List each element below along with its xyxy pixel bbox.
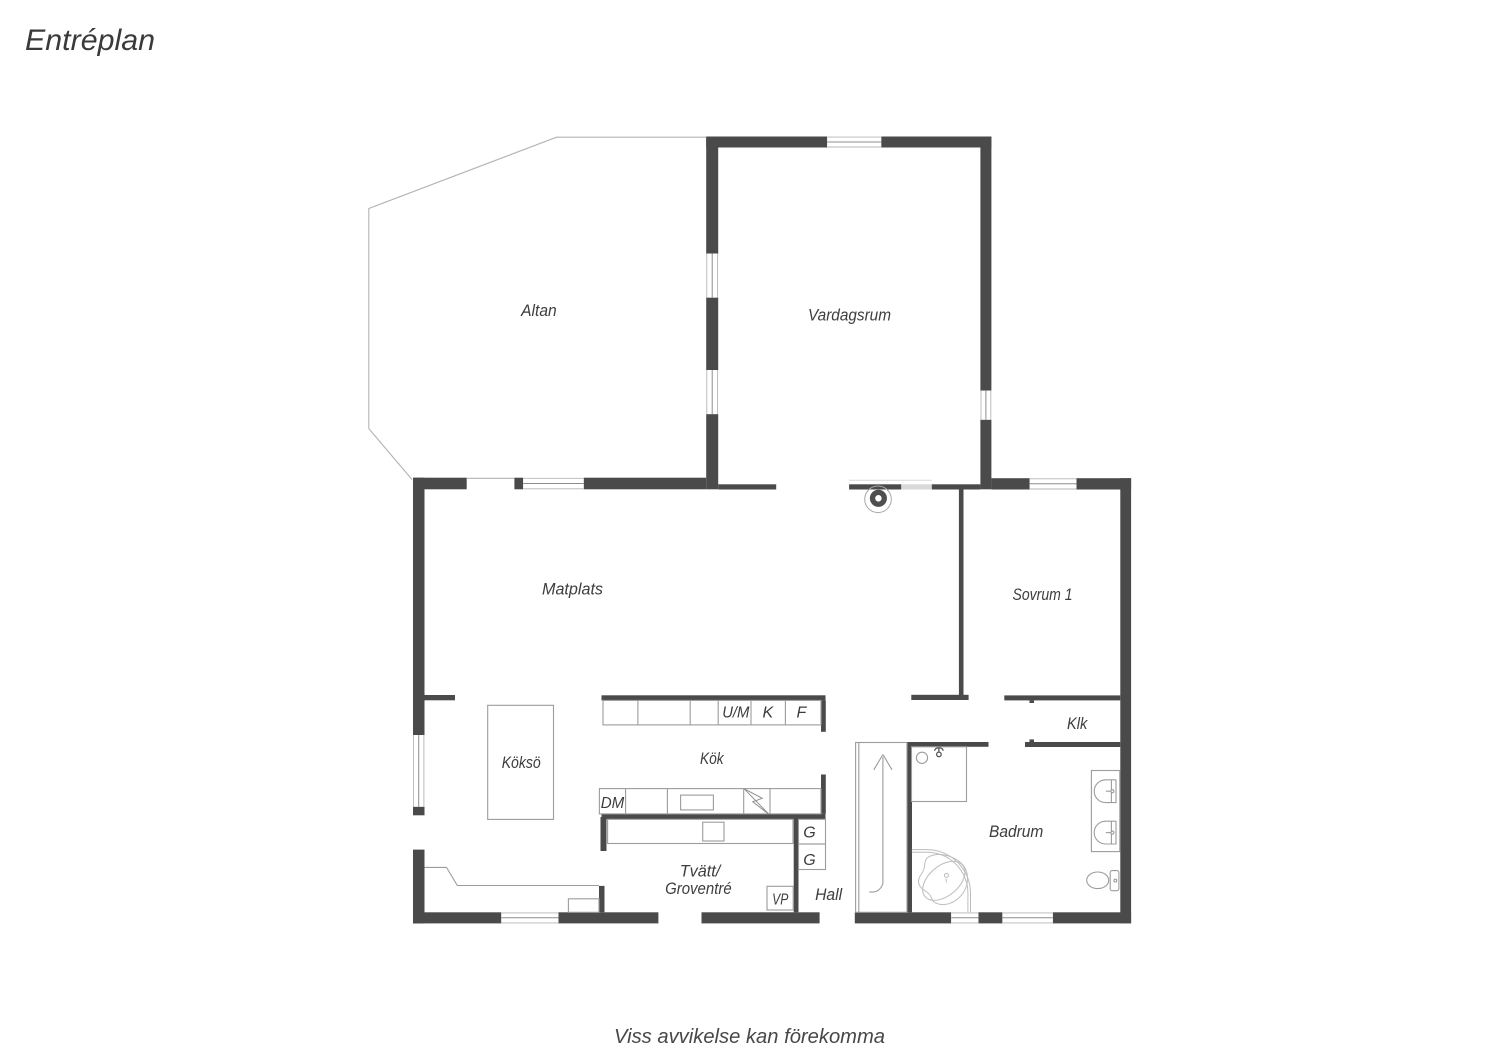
svg-text:Groventré: Groventré (665, 879, 732, 898)
svg-text:Matplats: Matplats (542, 580, 603, 599)
svg-text:Entréplan: Entréplan (25, 24, 155, 57)
svg-text:Badrum: Badrum (989, 822, 1043, 841)
svg-text:Viss avvikelse kan förekomma: Viss avvikelse kan förekomma (614, 1025, 885, 1048)
svg-text:DM: DM (601, 795, 625, 812)
svg-text:U/M: U/M (722, 705, 750, 722)
svg-text:Tvätt/: Tvätt/ (680, 862, 723, 881)
svg-text:F: F (797, 705, 808, 722)
svg-text:G: G (803, 825, 815, 842)
svg-text:Vardagsrum: Vardagsrum (808, 306, 891, 325)
svg-text:K: K (762, 705, 774, 722)
svg-text:Klk: Klk (1067, 714, 1089, 733)
svg-text:Köksö: Köksö (502, 753, 541, 772)
svg-text:G: G (803, 852, 815, 869)
svg-text:VP: VP (772, 891, 788, 908)
svg-text:Kök: Kök (700, 749, 725, 768)
svg-text:Altan: Altan (520, 301, 556, 320)
svg-text:Sovrum 1: Sovrum 1 (1013, 585, 1073, 604)
svg-text:Hall: Hall (815, 885, 843, 904)
